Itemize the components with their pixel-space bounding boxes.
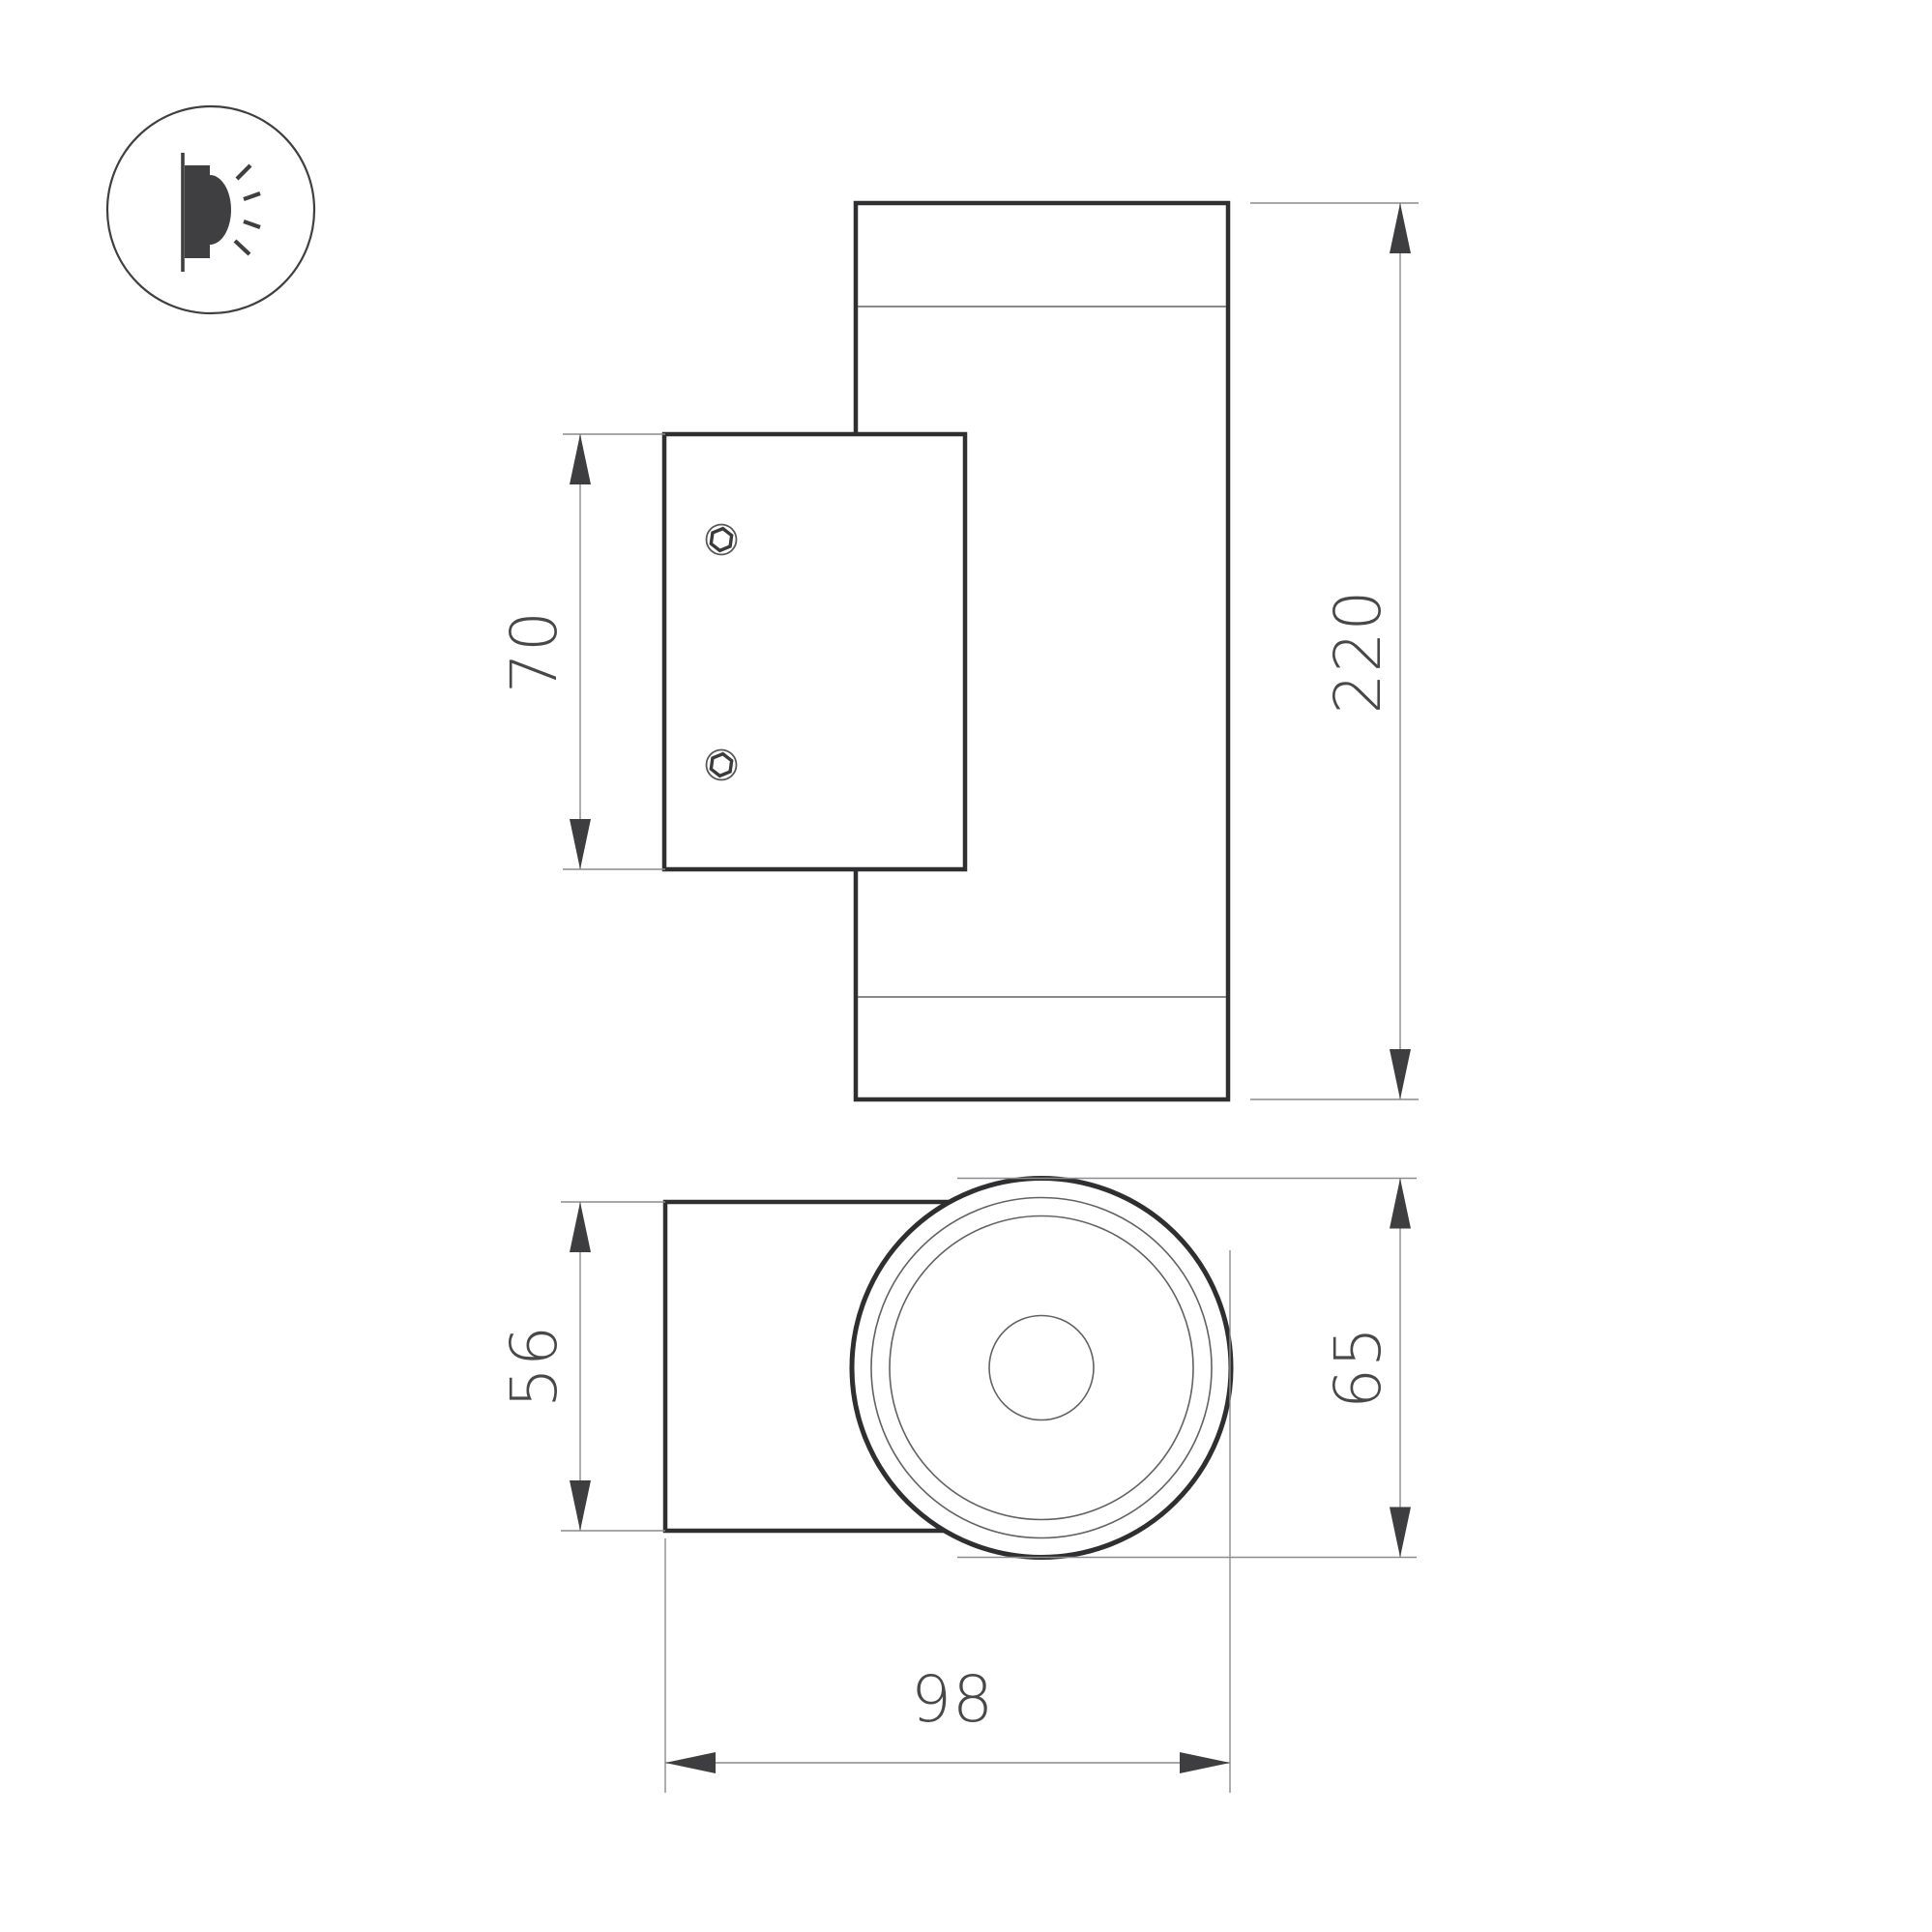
dimension-label-56: 56 [497,1325,571,1408]
lamp-face-outer [852,1179,1231,1558]
arrow-down-icon [1390,1049,1411,1099]
screw-bottom [707,750,737,780]
dimension-plate-height: 70 [497,434,665,869]
arrow-up-icon [1390,1179,1411,1229]
dimension-label-65: 65 [1321,1326,1395,1409]
dimension-label-220: 220 [1321,590,1395,715]
technical-drawing: 70 220 56 [0,0,1932,1932]
top-view: 56 65 98 [497,1179,1417,1794]
arrow-left-icon [665,1752,716,1773]
wall-light-icon [107,106,314,313]
screw-top [707,525,737,555]
arrow-down-icon [570,819,591,869]
dimension-body-depth: 56 [497,1202,665,1531]
icon-lamp-body [185,165,210,258]
arrow-up-icon [1390,203,1411,253]
side-view: 70 220 [497,203,1419,1099]
dimension-label-70: 70 [497,610,571,693]
arrow-up-icon [570,1202,591,1252]
arrow-down-icon [1390,1508,1411,1558]
dimension-label-98: 98 [911,1662,994,1737]
dimension-overall-height: 220 [1250,203,1419,1099]
mounting-plate [664,434,965,869]
arrow-right-icon [1180,1752,1230,1773]
arrow-down-icon [570,1480,591,1531]
arrow-up-icon [570,434,591,484]
drawing-canvas: 70 220 56 [0,0,1932,1932]
